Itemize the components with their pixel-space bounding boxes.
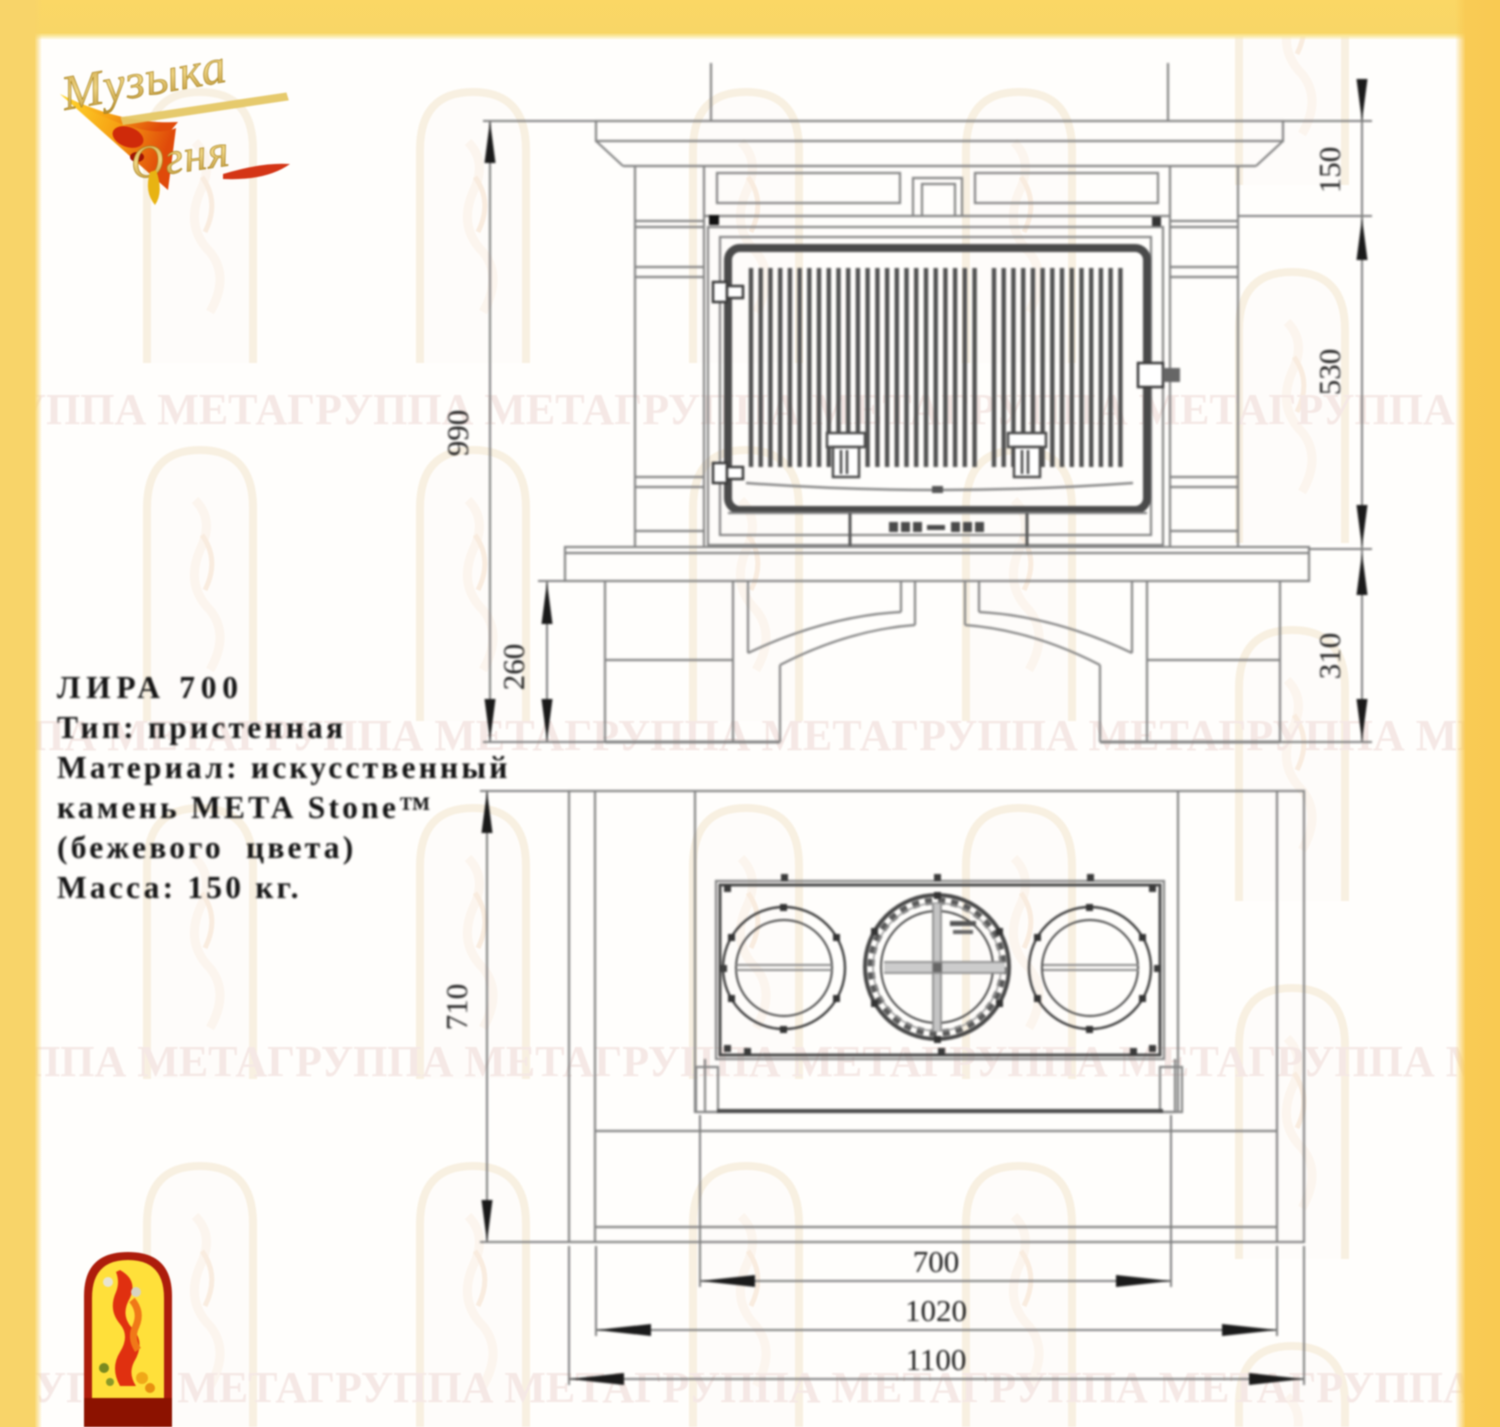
svg-text:990: 990 bbox=[440, 410, 475, 457]
svg-text:1020: 1020 bbox=[905, 1293, 967, 1328]
svg-text:1100: 1100 bbox=[906, 1342, 967, 1377]
svg-text:700: 700 bbox=[913, 1244, 960, 1279]
svg-text:150: 150 bbox=[1312, 147, 1347, 194]
svg-text:710: 710 bbox=[439, 984, 474, 1031]
svg-text:530: 530 bbox=[1312, 349, 1347, 396]
svg-text:310: 310 bbox=[1312, 633, 1347, 680]
